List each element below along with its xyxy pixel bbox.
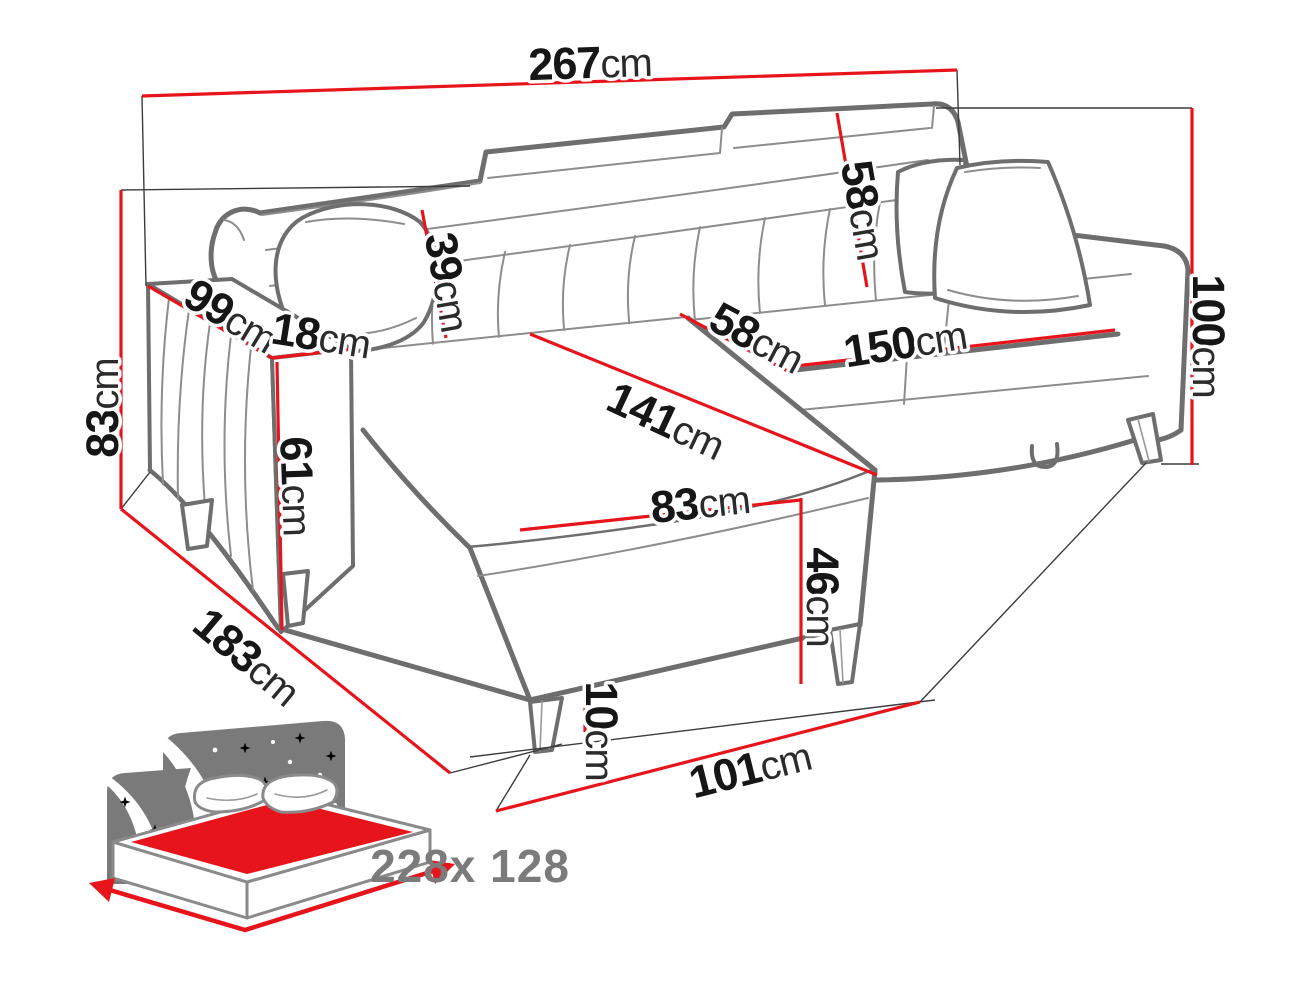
dimension-label-total-width: 267cm xyxy=(527,35,652,90)
pillows-right xyxy=(897,160,1090,312)
sleeping-area-label: 228x 128 xyxy=(370,840,570,892)
dimension-label-base-height: 46cm xyxy=(797,547,848,646)
dimension-label-total-height: 100cm xyxy=(1183,274,1234,397)
dimension-label-leg-height: 10cm xyxy=(576,681,627,780)
sofa-dimension-drawing: 267cm 58cm 39cm 99cm 18cm 83cm 100cm 61c… xyxy=(0,0,1313,985)
pillow-front xyxy=(934,161,1090,312)
leg-armrest-front xyxy=(283,571,308,626)
sleeping-area-icon: 228x 128 xyxy=(89,721,570,930)
leg-front-left xyxy=(530,698,562,752)
dimension-diagram-page: 267cm 58cm 39cm 99cm 18cm 83cm 100cm 61c… xyxy=(0,0,1313,985)
leg-back-right xyxy=(1128,414,1161,463)
dimension-label-side-height-left: 83cm xyxy=(77,358,128,457)
leg-armrest-back xyxy=(182,500,212,549)
dimension-label-right-side-depth: 101cm xyxy=(684,729,816,808)
dimension-label-armrest-front-height: 61cm xyxy=(270,435,324,536)
